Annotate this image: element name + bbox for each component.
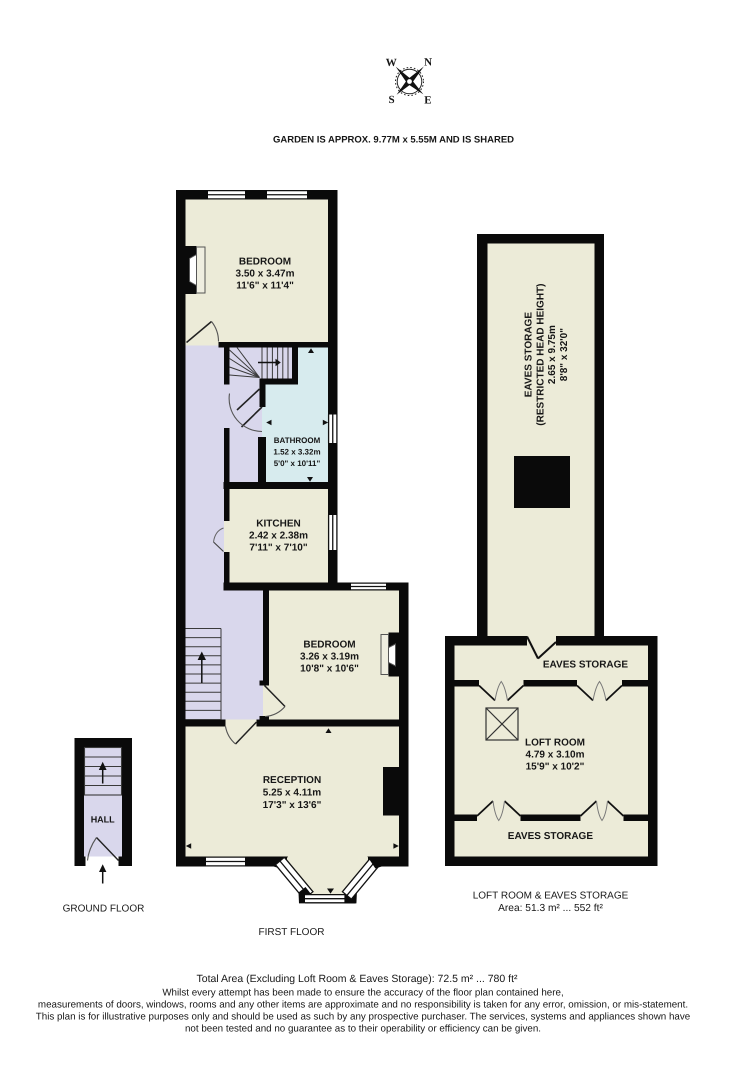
svg-text:11'6" x 11'4": 11'6" x 11'4" <box>236 281 294 292</box>
svg-text:3.50 x 3.47m: 3.50 x 3.47m <box>236 269 295 280</box>
svg-text:S: S <box>389 94 395 106</box>
svg-text:KITCHEN: KITCHEN <box>256 519 300 530</box>
svg-text:measurements of doors, windows: measurements of doors, windows, rooms an… <box>38 1000 688 1011</box>
svg-text:1.52 x 3.32m: 1.52 x 3.32m <box>273 448 320 457</box>
svg-text:GARDEN IS APPROX. 9.77M x 5.55: GARDEN IS APPROX. 9.77M x 5.55M AND IS S… <box>273 135 514 146</box>
svg-text:GROUND FLOOR: GROUND FLOOR <box>63 904 145 915</box>
svg-text:This plan is for illustrative: This plan is for illustrative purposes o… <box>36 1012 691 1023</box>
svg-text:EAVES STORAGE: EAVES STORAGE <box>508 831 594 842</box>
svg-text:4.79 x 3.10m: 4.79 x 3.10m <box>526 750 585 761</box>
svg-text:not been tested and no guarant: not been tested and no guarantee as to t… <box>185 1024 541 1035</box>
svg-text:10'8" x 10'6": 10'8" x 10'6" <box>300 664 359 675</box>
svg-text:2.65 x 9.75m: 2.65 x 9.75m <box>547 325 558 384</box>
svg-text:(RESTRICTED HEAD HEIGHT): (RESTRICTED HEAD HEIGHT) <box>535 283 546 425</box>
svg-text:BATHROOM: BATHROOM <box>274 436 321 445</box>
svg-text:N: N <box>424 57 432 69</box>
svg-text:Whilst every attempt has been: Whilst every attempt has been made to en… <box>162 988 563 999</box>
svg-text:15'9" x 10'2": 15'9" x 10'2" <box>526 762 585 773</box>
svg-text:LOFT ROOM & EAVES STORAGE: LOFT ROOM & EAVES STORAGE <box>473 891 629 902</box>
svg-text:BEDROOM: BEDROOM <box>239 257 291 268</box>
svg-text:W: W <box>386 57 397 69</box>
svg-text:5.25 x 4.11m: 5.25 x 4.11m <box>263 788 321 799</box>
svg-text:17'3" x 13'6": 17'3" x 13'6" <box>263 800 322 811</box>
svg-text:3.26 x 3.19m: 3.26 x 3.19m <box>300 652 359 663</box>
svg-text:E: E <box>424 94 431 106</box>
svg-text:2.42 x 2.38m: 2.42 x 2.38m <box>249 531 308 542</box>
svg-text:5'0" x 10'11": 5'0" x 10'11" <box>274 459 321 468</box>
svg-text:HALL: HALL <box>91 815 115 825</box>
svg-text:EAVES STORAGE: EAVES STORAGE <box>543 660 629 671</box>
svg-text:Area: 51.3 m² ... 552 ft²: Area: 51.3 m² ... 552 ft² <box>498 903 603 914</box>
svg-text:RECEPTION: RECEPTION <box>263 775 321 786</box>
svg-text:Total Area (Excluding Loft Roo: Total Area (Excluding Loft Room & Eaves … <box>197 973 518 985</box>
svg-text:LOFT ROOM: LOFT ROOM <box>525 738 585 749</box>
svg-text:EAVES STORAGE: EAVES STORAGE <box>524 312 535 398</box>
svg-text:BEDROOM: BEDROOM <box>303 640 355 651</box>
svg-text:7'11" x 7'10": 7'11" x 7'10" <box>249 543 307 554</box>
svg-text:FIRST FLOOR: FIRST FLOOR <box>259 927 325 938</box>
svg-text:8'8" x 32'0": 8'8" x 32'0" <box>559 328 570 381</box>
